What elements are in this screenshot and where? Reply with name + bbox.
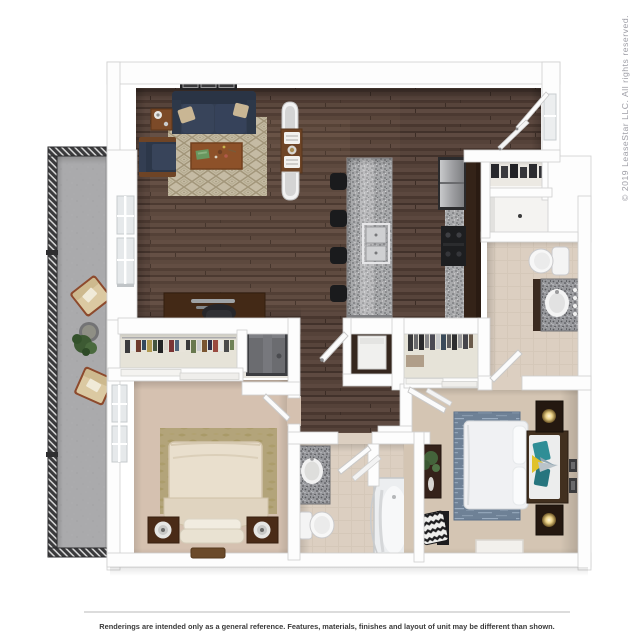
svg-text:Renderings are intended only a: Renderings are intended only as a genera…	[99, 622, 554, 631]
svg-text:© 2019 LeaseStar LLC. All righ: © 2019 LeaseStar LLC. All rights reserve…	[620, 15, 630, 201]
